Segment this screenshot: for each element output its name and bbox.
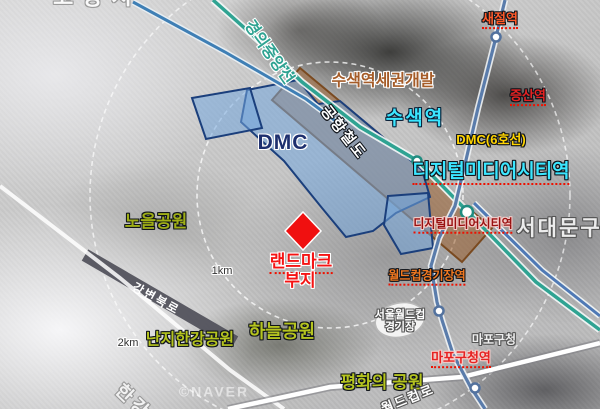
satellite-map: 고양시 경의중앙선 수색역세권개발 수색역 새절역 증산역 DMC(6호선) D… (0, 0, 600, 409)
dmc-station-text-large: 디지털미디어시티역 (412, 161, 569, 185)
dmc-station-text-small: 디지털미디어시티역 (413, 217, 512, 234)
district-label-seodaemun: 서대문구 (516, 218, 600, 240)
map-overlay-graphics (0, 0, 600, 409)
dmc-station-label-small: 디지털미디어시티역 (413, 218, 512, 231)
susaek-development-label: 수색역세권개발 (331, 74, 434, 91)
landmark-site-marker (285, 212, 321, 250)
mapo-office-label: 마포구청 (472, 334, 516, 347)
worldcup-stadium-label-line2: 경기장 (385, 322, 415, 334)
jeungsan-station-label: 증산역 (510, 89, 546, 103)
nanji-park-label: 난지한강공원 (146, 333, 234, 350)
mapo-office-station-text: 마포구청역 (431, 350, 491, 368)
naver-watermark: ©NAVER (179, 385, 249, 400)
worldcup-stadium-station-label: 월드컵경기장역 (388, 270, 465, 283)
landmark-site-label-line2: 부지 (284, 272, 315, 290)
mapo-office-station-marker (435, 307, 444, 316)
jeungsan-station-text: 증산역 (510, 88, 546, 106)
saejeol-station-text: 새절역 (482, 11, 518, 29)
landmark-site-label-line1: 랜드마크 (270, 253, 333, 271)
radius-label-2km: 2km (118, 338, 139, 350)
city-label-goyang: 고양시 (53, 0, 141, 9)
noeul-park-label: 노을공원 (125, 213, 188, 231)
line6-station-marker (471, 384, 480, 393)
mapo-office-station-label: 마포구청역 (431, 351, 491, 365)
worldcup-stadium-label-line1: 서울월드컵 (375, 310, 426, 322)
radius-label-1km: 1km (212, 266, 233, 278)
saejeol-station-marker (492, 33, 501, 42)
haneul-park-label: 하늘공원 (249, 323, 315, 342)
dmc-line6-label: DMC(6호선) (456, 133, 525, 147)
dmc-zone-label: DMC (258, 132, 309, 154)
saejeol-station-label: 새절역 (482, 12, 518, 26)
worldcup-stadium-station-text: 월드컵경기장역 (388, 269, 465, 286)
dmc-station-label-large: 디지털미디어시티역 (412, 162, 569, 182)
susaek-station-label: 수색역 (386, 109, 444, 129)
